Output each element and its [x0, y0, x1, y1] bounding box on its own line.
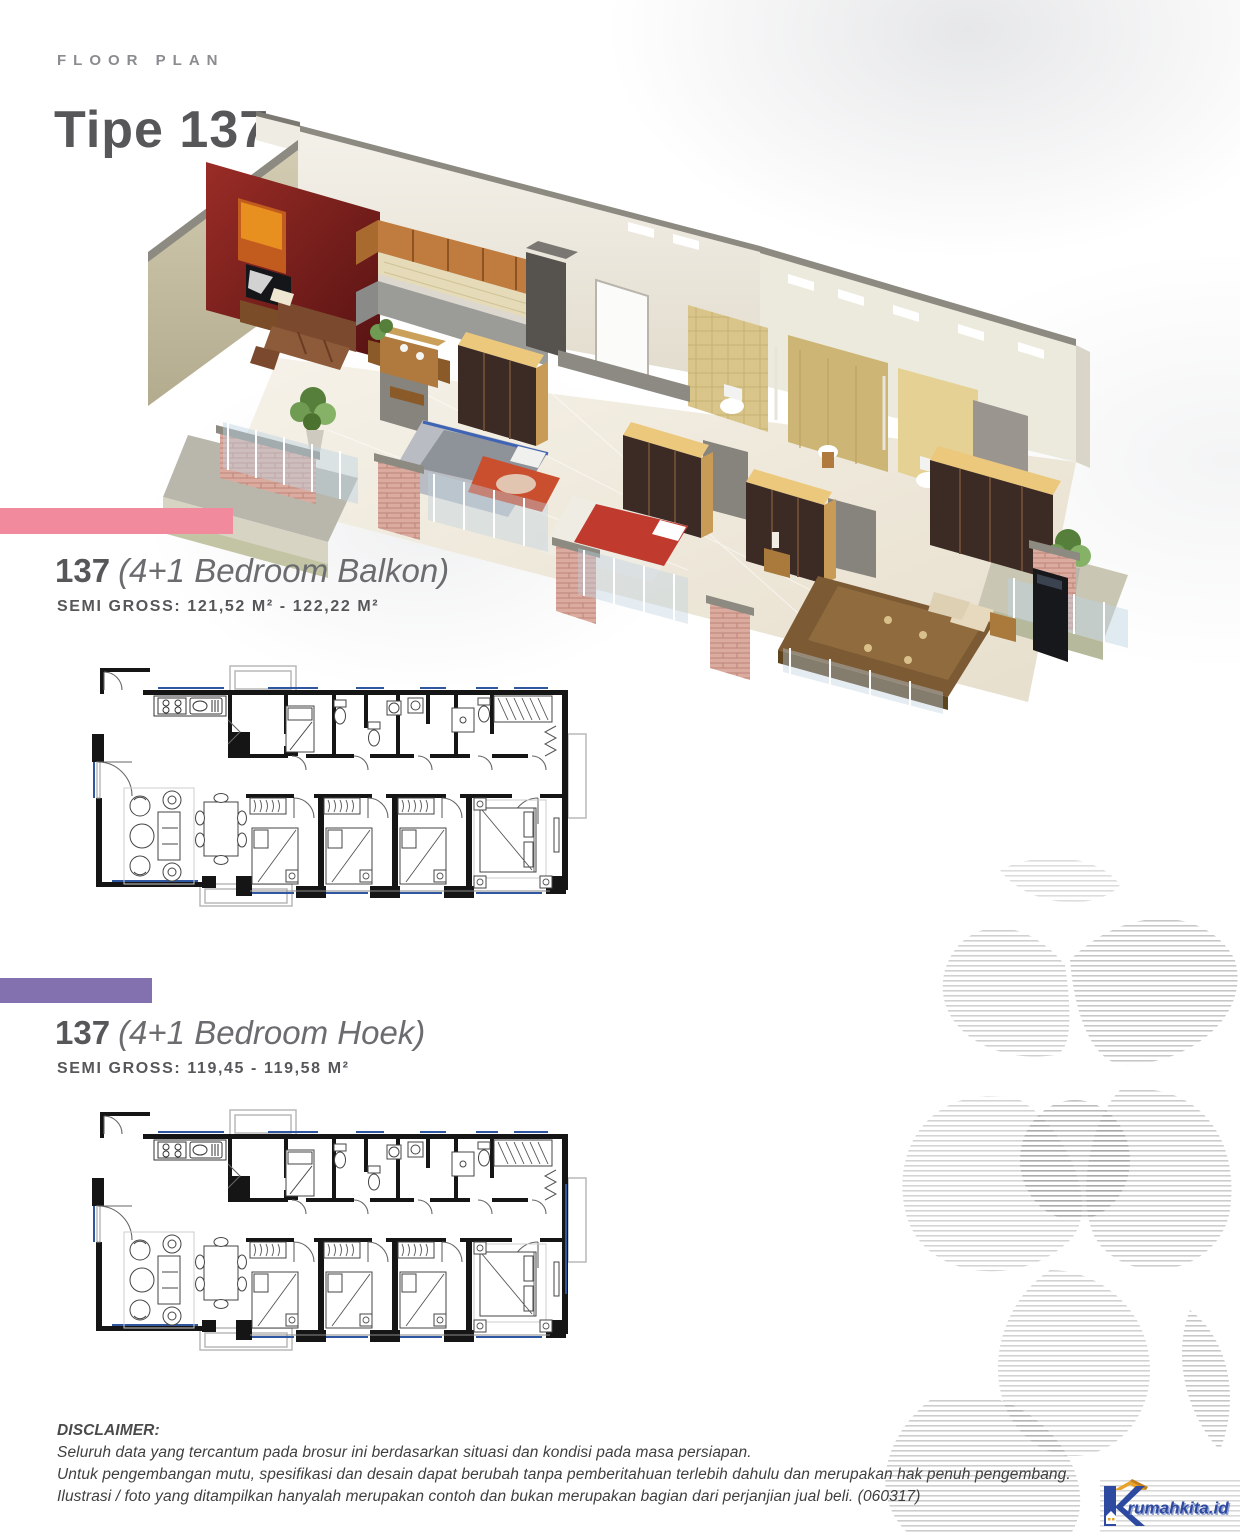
logo-text: rumahkita.id — [1128, 1499, 1230, 1518]
section-name: (4+1 Bedroom Hoek) — [118, 1014, 425, 1051]
disclaimer-block: DISCLAIMER: Seluruh data yang tercantum … — [57, 1420, 1071, 1508]
section-number: 137 — [55, 1014, 110, 1051]
section-name: (4+1 Bedroom Balkon) — [118, 552, 449, 589]
page-eyebrow: FLOOR PLAN — [57, 52, 225, 69]
rumahkita-logo: rumahkita.id rumahkita.id — [1096, 1478, 1238, 1532]
section-number: 137 — [55, 552, 110, 589]
floor-plan-hoek-drawing — [88, 1094, 588, 1352]
section-title-balkon: 137(4+1 Bedroom Balkon) — [55, 552, 449, 590]
semi-gross-balkon: SEMI GROSS: 121,52 M² - 122,22 M² — [57, 598, 379, 616]
isometric-apartment-render — [128, 100, 1140, 718]
section-accent-bar-pink — [0, 508, 233, 534]
floor-plan-balkon-drawing — [88, 650, 588, 908]
section-accent-bar-purple — [0, 978, 152, 1003]
disclaimer-line: Untuk pengembangan mutu, spesifikasi dan… — [57, 1464, 1071, 1486]
disclaimer-line: Ilustrasi / foto yang ditampilkan hanyal… — [57, 1486, 1071, 1508]
semi-gross-hoek: SEMI GROSS: 119,45 - 119,58 M² — [57, 1060, 350, 1078]
section-title-hoek: 137(4+1 Bedroom Hoek) — [55, 1014, 425, 1052]
disclaimer-line: Seluruh data yang tercantum pada brosur … — [57, 1442, 1071, 1464]
disclaimer-heading: DISCLAIMER: — [57, 1420, 1071, 1442]
brochure-page: FLOOR PLAN Tipe 137 — [0, 0, 1240, 1535]
